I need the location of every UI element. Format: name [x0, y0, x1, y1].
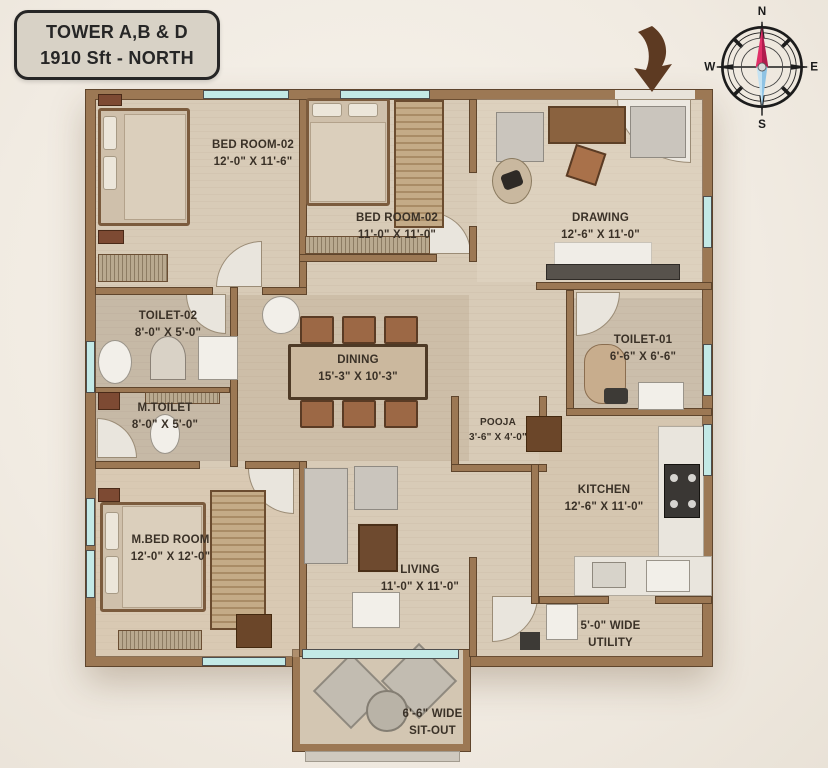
room-dims: 3'-6" X 4'-0"	[452, 431, 544, 446]
toilet2-basin	[98, 340, 132, 384]
sitout-step	[305, 751, 460, 762]
window-right-3	[703, 424, 712, 476]
room-name: DINING	[292, 352, 424, 369]
room-dims: 12'-0" X 11'-6"	[178, 154, 328, 171]
compass-e-label: E	[810, 61, 818, 74]
nightstand	[98, 230, 124, 244]
stove-burners	[670, 474, 678, 482]
wall-drawing-bottom	[536, 282, 712, 290]
label-toilet2: TOILET-02 8'-0" X 5'-0"	[102, 308, 234, 341]
bed-blanket	[124, 114, 186, 220]
living-seat-white	[352, 592, 400, 628]
nightstand	[98, 488, 120, 502]
toilet2-wc	[150, 336, 186, 380]
kitchen-fridge	[646, 560, 690, 592]
room-name: BED ROOM-02	[178, 137, 328, 154]
label-mtoilet: M.TOILET 8'-0" X 5'-0"	[100, 400, 230, 433]
room-name: LIVING	[355, 562, 485, 579]
wall-mtoilet-bottom-1	[95, 461, 200, 469]
room-name: M.TOILET	[100, 400, 230, 417]
window-bottom-1	[202, 657, 286, 666]
pillow	[312, 103, 342, 117]
room-dims: 6'-6" X 6'-6"	[578, 349, 708, 366]
toilet1-shower	[638, 382, 684, 410]
room-dims: 12'-0" X 12'-0"	[98, 549, 243, 566]
window-left-3	[86, 550, 95, 598]
living-seat	[354, 466, 398, 510]
label-dining: DINING 15'-3" X 10'-3"	[292, 352, 424, 385]
wall-drawing-left	[469, 99, 477, 173]
room-dims: 15'-3" X 10'-3"	[292, 369, 424, 386]
title-line-1: TOWER A,B & D	[46, 19, 188, 45]
dining-chair	[384, 400, 418, 428]
wall-bed2a-bottom-1	[95, 287, 213, 295]
compass-n-label: N	[758, 5, 766, 18]
room-dims: 12'-6" X 11'-0"	[534, 499, 674, 516]
wall-bed2b-bottom	[299, 254, 437, 262]
room-name: DRAWING	[528, 210, 673, 227]
pillow	[103, 116, 117, 150]
label-kitchen: KITCHEN 12'-6" X 11'-0"	[534, 482, 674, 515]
compass-s-label: S	[758, 118, 766, 130]
entry-arrow-icon	[622, 24, 674, 99]
room-dims: 12'-6" X 11'-0"	[528, 227, 673, 244]
room-dims: 8'-0" X 5'-0"	[102, 325, 234, 342]
room-name: M.BED ROOM	[98, 532, 243, 549]
title-box: TOWER A,B & D 1910 Sft - NORTH	[14, 10, 220, 80]
drawing-sideboard	[546, 264, 680, 280]
compass-w-label: W	[704, 61, 716, 74]
window-top-1	[203, 90, 289, 99]
label-drawing: DRAWING 12'-6" X 11'-0"	[528, 210, 673, 243]
dining-chair	[300, 316, 334, 344]
label-pooja: POOJA 3'-6" X 4'-0"	[452, 416, 544, 445]
toilet1-wc	[604, 388, 628, 404]
toilet2-shower	[198, 336, 238, 380]
room-name: UTILITY	[548, 635, 673, 652]
wall-utility-top-2	[655, 596, 712, 604]
pillow	[103, 156, 117, 190]
title-line-2: 1910 Sft - NORTH	[40, 45, 194, 71]
window-right-1	[703, 196, 712, 248]
room-dims: 5'-0" WIDE	[548, 618, 673, 635]
master-stool	[236, 614, 272, 648]
label-mbedroom: M.BED ROOM 12'-0" X 12'-0"	[98, 532, 243, 565]
master-bench	[118, 630, 202, 650]
drawing-seat-1	[496, 112, 544, 162]
floor-plan-page: TOWER A,B & D 1910 Sft - NORTH	[0, 0, 828, 768]
window-left-1	[86, 341, 95, 393]
compass-rose-icon: N S E W	[704, 4, 820, 135]
wall-utility-top-1	[539, 596, 609, 604]
room-name: TOILET-01	[578, 332, 708, 349]
pillow	[348, 103, 378, 117]
room-name: BED ROOM-02	[322, 210, 472, 227]
window-left-2	[86, 498, 95, 546]
label-utility: 5'-0" WIDE UTILITY	[548, 618, 673, 651]
room-name: TOILET-02	[102, 308, 234, 325]
label-living: LIVING 11'-0" X 11'-0"	[355, 562, 485, 595]
wall-toilet1-left	[566, 290, 574, 416]
drawing-seat-2	[630, 106, 686, 158]
room-name: POOJA	[452, 416, 544, 431]
label-sitout: 6'-6" WIDE SIT-OUT	[370, 706, 495, 739]
label-toilet1: TOILET-01 6'-6" X 6'-6"	[578, 332, 708, 365]
dining-chair	[342, 400, 376, 428]
nightstand	[98, 94, 122, 106]
wall-mtoilet-bottom-2	[245, 461, 307, 469]
label-bedroom2-left: BED ROOM-02 12'-0" X 11'-6"	[178, 137, 328, 170]
room-dims: 6'-6" WIDE	[370, 706, 495, 723]
dining-chair	[384, 316, 418, 344]
wall-bed2a-bottom-2	[262, 287, 307, 295]
dining-chair	[342, 316, 376, 344]
window-sitout-slider	[302, 649, 459, 659]
living-sofa	[304, 468, 348, 564]
wardrobe-bedroom2-mid	[394, 100, 444, 228]
wardrobe-bedroom2-left	[98, 254, 168, 282]
window-top-2	[340, 90, 430, 99]
drawing-desk	[548, 106, 626, 144]
room-name: SIT-OUT	[370, 723, 495, 740]
foyer-table	[262, 296, 300, 334]
room-dims: 11'-0" X 11'-0"	[322, 227, 472, 244]
kitchen-sink	[592, 562, 626, 588]
room-name: KITCHEN	[534, 482, 674, 499]
room-dims: 8'-0" X 5'-0"	[100, 417, 230, 434]
label-bedroom2-mid: BED ROOM-02 11'-0" X 11'-0"	[322, 210, 472, 243]
room-dims: 11'-0" X 11'-0"	[355, 579, 485, 596]
dining-chair	[300, 400, 334, 428]
utility-box	[520, 632, 540, 650]
